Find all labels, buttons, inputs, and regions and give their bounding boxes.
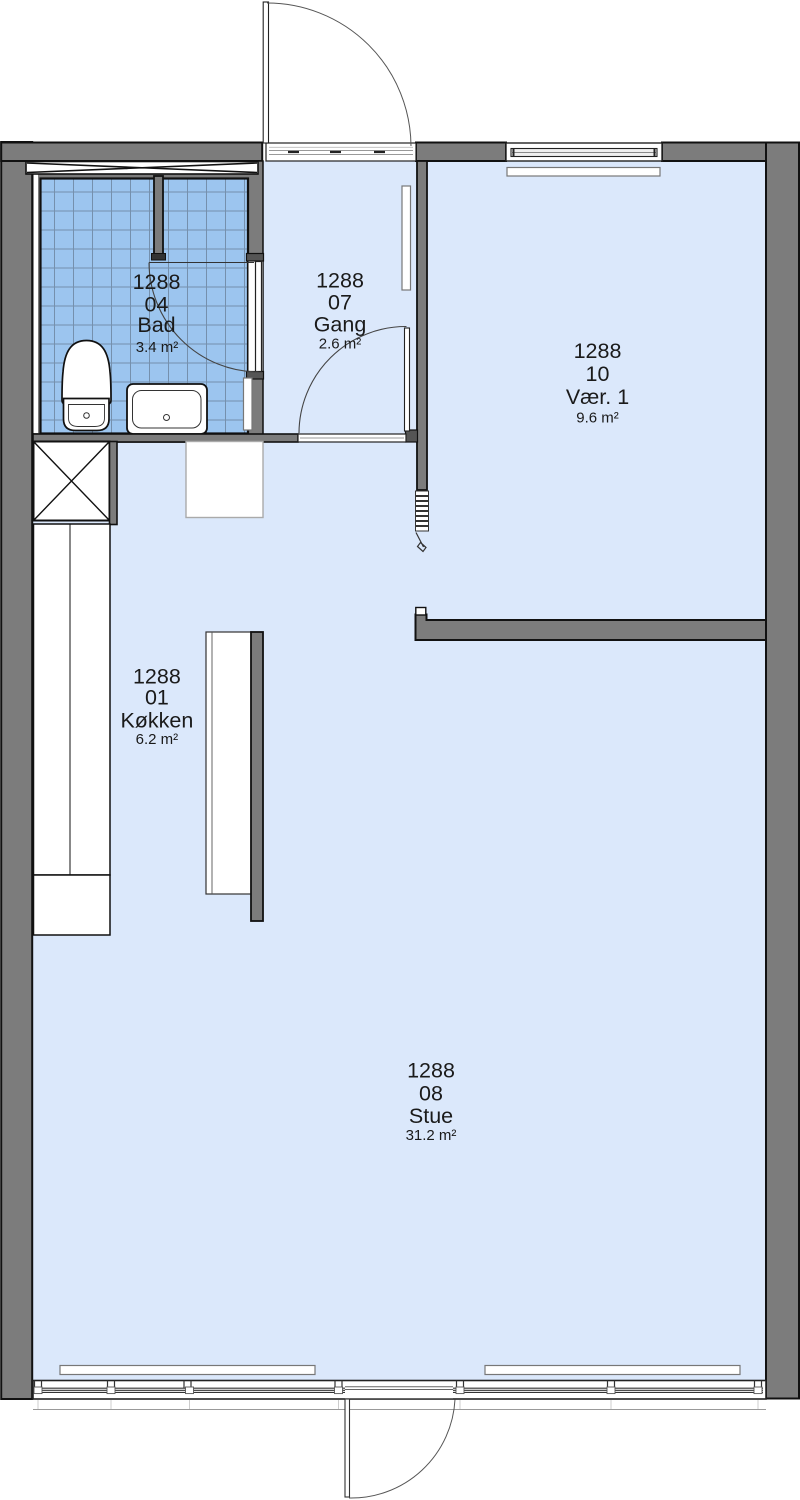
svg-text:9.6 m²: 9.6 m² <box>576 410 619 427</box>
svg-text:1288: 1288 <box>133 270 181 294</box>
svg-text:10: 10 <box>586 362 610 386</box>
svg-text:1288: 1288 <box>574 339 622 363</box>
svg-text:07: 07 <box>328 291 352 315</box>
svg-text:Gang: Gang <box>314 313 367 337</box>
svg-text:Køkken: Køkken <box>120 708 193 732</box>
svg-text:3.4 m²: 3.4 m² <box>136 339 179 356</box>
svg-text:6.2 m²: 6.2 m² <box>136 731 179 748</box>
svg-text:Vær. 1: Vær. 1 <box>566 385 629 409</box>
svg-text:1288: 1288 <box>316 269 364 293</box>
svg-text:01: 01 <box>145 686 169 710</box>
svg-text:1288: 1288 <box>407 1059 455 1083</box>
svg-text:08: 08 <box>419 1081 443 1105</box>
svg-text:31.2 m²: 31.2 m² <box>406 1127 457 1144</box>
svg-text:Bad: Bad <box>137 313 175 337</box>
svg-text:2.6 m²: 2.6 m² <box>319 336 362 353</box>
svg-text:Stue: Stue <box>409 1104 453 1128</box>
